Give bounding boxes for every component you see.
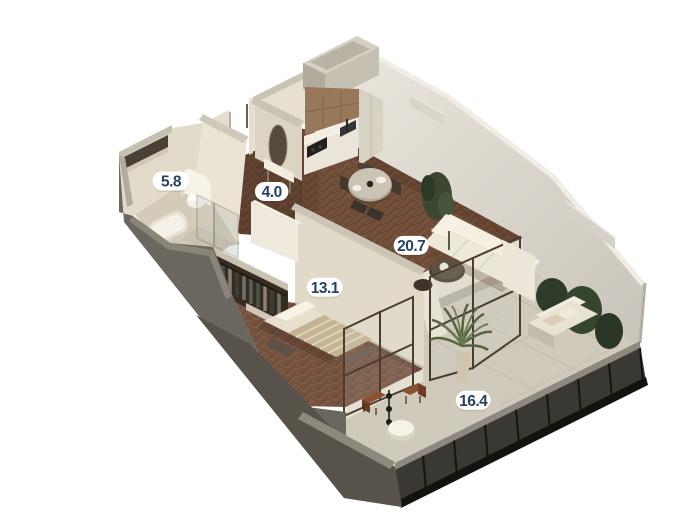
svg-text:13.1: 13.1 [311, 280, 340, 297]
svg-text:4.0: 4.0 [262, 184, 282, 201]
svg-text:20.7: 20.7 [397, 238, 425, 255]
svg-text:16.4: 16.4 [459, 393, 488, 410]
svg-text:5.8: 5.8 [161, 174, 182, 191]
